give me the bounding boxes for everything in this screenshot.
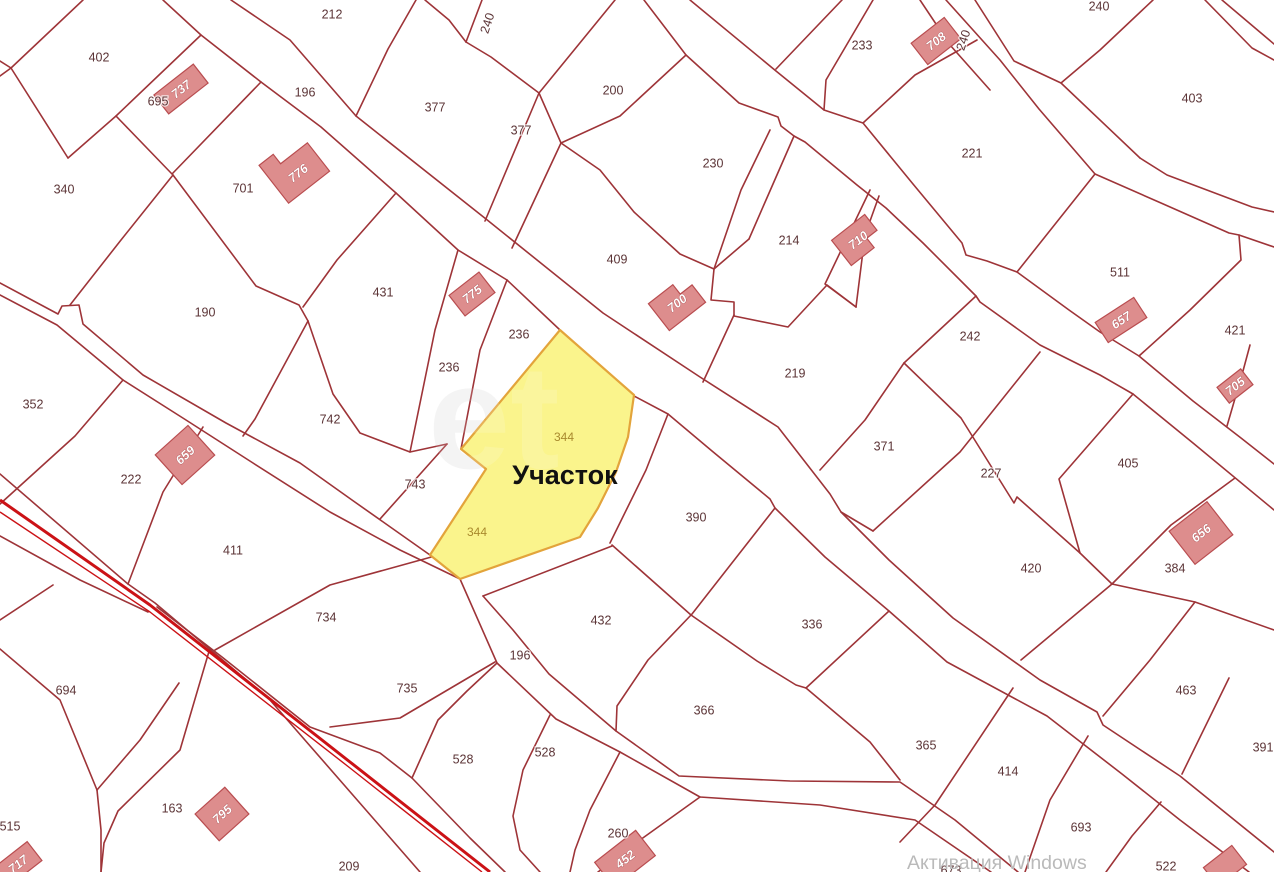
svg-text:390: 390 <box>686 511 707 525</box>
svg-text:Участок: Участок <box>512 460 618 490</box>
svg-text:233: 233 <box>852 39 873 53</box>
svg-text:209: 209 <box>339 860 360 872</box>
svg-text:515: 515 <box>0 820 20 834</box>
svg-text:236: 236 <box>439 361 460 375</box>
svg-text:402: 402 <box>89 51 110 65</box>
svg-text:734: 734 <box>316 611 337 625</box>
svg-text:414: 414 <box>998 765 1019 779</box>
svg-text:260: 260 <box>608 827 629 841</box>
svg-text:695: 695 <box>148 95 169 109</box>
svg-text:403: 403 <box>1182 92 1203 106</box>
svg-text:377: 377 <box>425 101 446 115</box>
svg-text:340: 340 <box>54 183 75 197</box>
svg-text:230: 230 <box>703 157 724 171</box>
svg-text:384: 384 <box>1165 562 1186 576</box>
svg-text:421: 421 <box>1225 324 1246 338</box>
svg-text:221: 221 <box>962 147 983 161</box>
svg-text:743: 743 <box>405 478 426 492</box>
svg-text:742: 742 <box>320 413 341 427</box>
svg-text:242: 242 <box>960 330 981 344</box>
svg-text:336: 336 <box>802 618 823 632</box>
svg-text:511: 511 <box>1110 266 1130 280</box>
svg-text:214: 214 <box>779 234 800 248</box>
svg-text:701: 701 <box>233 182 254 196</box>
svg-text:190: 190 <box>195 306 216 320</box>
svg-text:528: 528 <box>453 753 474 767</box>
svg-text:200: 200 <box>603 84 624 98</box>
svg-text:344: 344 <box>554 430 574 444</box>
svg-text:240: 240 <box>1089 0 1110 14</box>
svg-text:405: 405 <box>1118 457 1139 471</box>
svg-text:735: 735 <box>397 682 418 696</box>
svg-text:196: 196 <box>295 86 316 100</box>
svg-text:411: 411 <box>223 544 243 558</box>
svg-text:522: 522 <box>1156 860 1177 872</box>
svg-text:Активация Windows: Активация Windows <box>907 852 1087 872</box>
svg-text:227: 227 <box>981 467 1002 481</box>
svg-text:219: 219 <box>785 367 806 381</box>
svg-text:409: 409 <box>607 253 628 267</box>
svg-text:391: 391 <box>1253 741 1274 755</box>
svg-text:432: 432 <box>591 614 612 628</box>
svg-text:366: 366 <box>694 704 715 718</box>
svg-text:344: 344 <box>467 525 487 539</box>
svg-text:236: 236 <box>509 328 530 342</box>
svg-text:693: 693 <box>1071 821 1092 835</box>
svg-text:420: 420 <box>1021 562 1042 576</box>
svg-text:365: 365 <box>916 739 937 753</box>
svg-text:371: 371 <box>874 440 895 454</box>
svg-text:431: 431 <box>373 286 394 300</box>
svg-text:222: 222 <box>121 473 142 487</box>
svg-text:694: 694 <box>56 684 77 698</box>
svg-text:463: 463 <box>1176 684 1197 698</box>
svg-text:163: 163 <box>162 802 183 816</box>
svg-text:196: 196 <box>510 649 531 663</box>
svg-text:528: 528 <box>535 746 556 760</box>
svg-text:352: 352 <box>23 398 44 412</box>
svg-text:212: 212 <box>322 8 343 22</box>
svg-text:377: 377 <box>511 124 532 138</box>
